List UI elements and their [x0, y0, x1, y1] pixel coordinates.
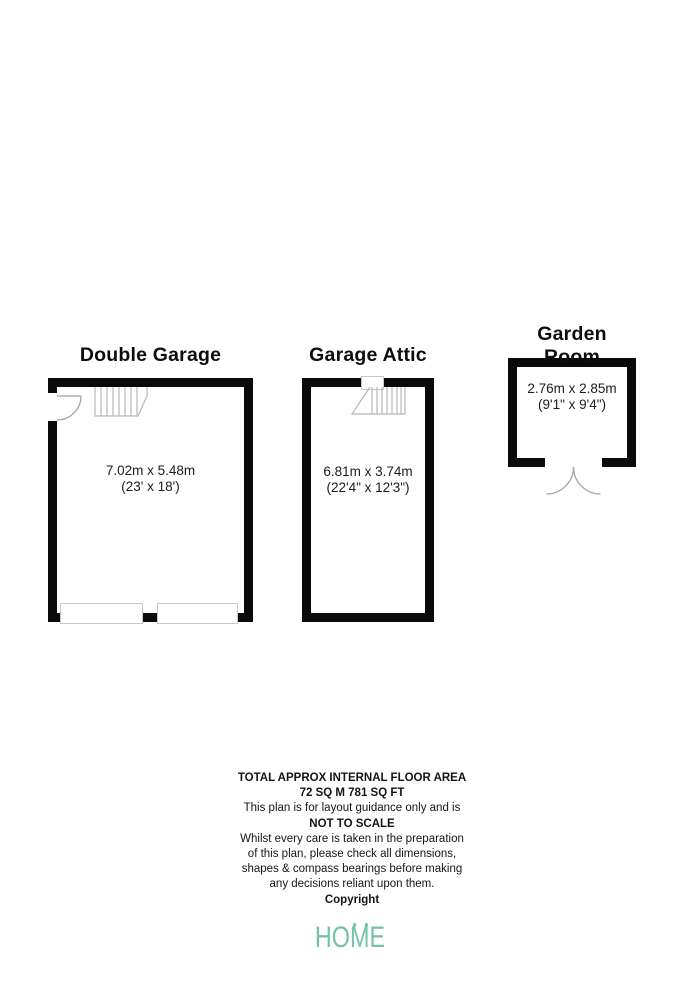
room-dims-garden-room: 2.76m x 2.85m (9'1" x 9'4"): [508, 381, 636, 412]
footer-disclaimer: TOTAL APPROX INTERNAL FLOOR AREA 72 SQ M…: [52, 771, 652, 908]
logo-text-e: E: [369, 921, 385, 954]
double-garage-door-opening: [48, 393, 57, 421]
room-title-garden-room: Garden Room: [508, 323, 636, 369]
door-arc-icon-garden-room: [547, 467, 601, 494]
attic-hatch-panel: [361, 376, 384, 390]
dim-metric: 7.02m x 5.48m: [48, 463, 253, 479]
garage-door-panel-left: [60, 603, 143, 624]
home-logo: HOME: [272, 921, 428, 955]
room-outline-garage-attic: [302, 378, 434, 622]
floorplan-page: Double Garage 7.02m x 5.48m (23' x 18') …: [0, 0, 700, 990]
logo-text-ho: HO: [315, 921, 350, 954]
room-title-garage-attic: Garage Attic: [302, 344, 434, 367]
footer-total-area-value: 72 SQ M 781 SQ FT: [52, 786, 652, 801]
room-outline-garden-room: [508, 358, 636, 467]
footer-not-to-scale: NOT TO SCALE: [52, 817, 652, 832]
dim-imperial: (22'4" x 12'3"): [302, 480, 434, 496]
logo-dot-icon: [365, 923, 368, 927]
footer-guidance-line: This plan is for layout guidance only an…: [52, 801, 652, 816]
footer-care-line-2: of this plan, please check all dimension…: [52, 847, 652, 862]
logo-dot-icon: [353, 923, 356, 927]
dim-metric: 6.81m x 3.74m: [302, 464, 434, 480]
footer-care-line-1: Whilst every care is taken in the prepar…: [52, 832, 652, 847]
garden-room-door-opening: [545, 458, 602, 467]
footer-copyright: Copyright: [52, 893, 652, 908]
garage-door-panel-right: [157, 603, 238, 624]
dim-metric: 2.76m x 2.85m: [508, 381, 636, 397]
footer-care-line-4: any decisions reliant upon them.: [52, 877, 652, 892]
dim-imperial: (9'1" x 9'4"): [508, 397, 636, 413]
room-outline-double-garage: [48, 378, 253, 622]
room-dims-garage-attic: 6.81m x 3.74m (22'4" x 12'3"): [302, 464, 434, 495]
footer-total-area-label: TOTAL APPROX INTERNAL FLOOR AREA: [52, 771, 652, 786]
room-dims-double-garage: 7.02m x 5.48m (23' x 18'): [48, 463, 253, 494]
room-title-double-garage: Double Garage: [48, 344, 253, 367]
footer-care-line-3: shapes & compass bearings before making: [52, 862, 652, 877]
dim-imperial: (23' x 18'): [48, 479, 253, 495]
